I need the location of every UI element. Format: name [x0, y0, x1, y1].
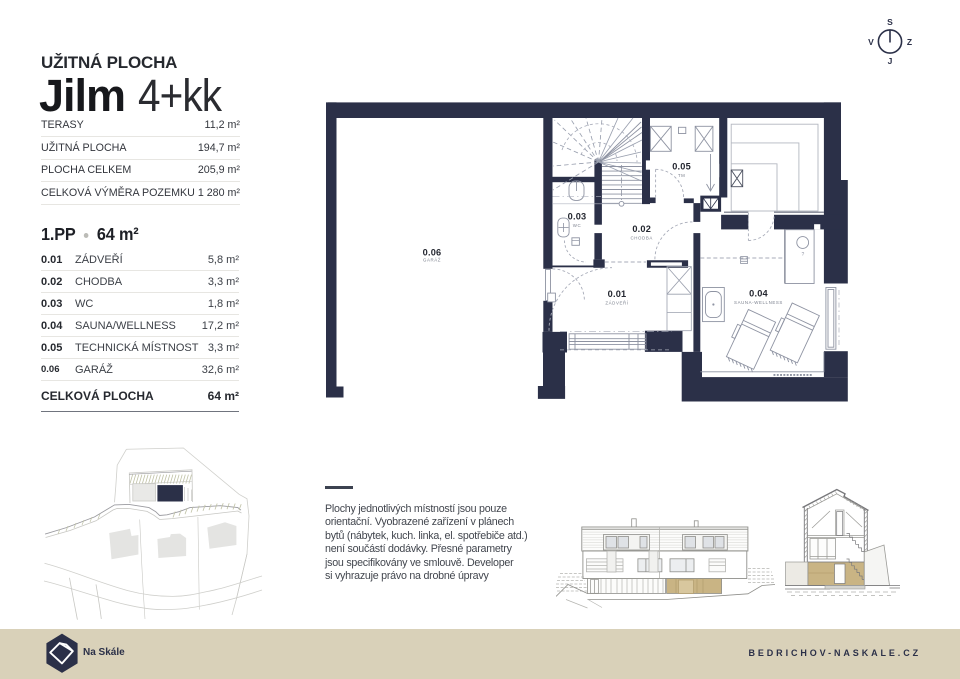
svg-text:J: J	[888, 56, 893, 66]
svg-text:0.05: 0.05	[672, 162, 691, 172]
svg-text:0.02: 0.02	[632, 224, 651, 234]
svg-text:WC: WC	[573, 223, 582, 228]
svg-text:0.03: 0.03	[568, 212, 587, 222]
svg-text:Z: Z	[907, 37, 912, 47]
svg-text:GARÁŽ: GARÁŽ	[423, 258, 441, 263]
svg-text:S: S	[887, 17, 893, 27]
svg-text:0.01: 0.01	[608, 289, 627, 299]
svg-text:V: V	[868, 37, 874, 47]
svg-text:0.04: 0.04	[749, 289, 768, 299]
svg-text:ZÁDVEŘÍ: ZÁDVEŘÍ	[605, 301, 628, 306]
svg-text:0.06: 0.06	[423, 248, 442, 258]
svg-text:TM: TM	[678, 173, 686, 178]
svg-text:SAUNA-WELLNESS: SAUNA-WELLNESS	[734, 300, 783, 305]
svg-text:CHODBA: CHODBA	[631, 236, 653, 241]
svg-text:?: ?	[802, 252, 805, 258]
